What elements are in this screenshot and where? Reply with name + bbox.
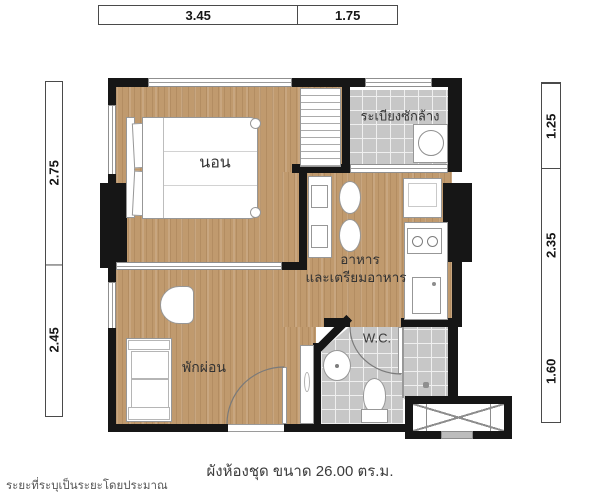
placemat-1 <box>311 185 328 208</box>
entry-console <box>300 345 314 424</box>
balcony-label: ระเบียงซักล้าง <box>361 106 440 127</box>
dimension-left-1: 2.75 <box>46 82 62 265</box>
dimension-right-1: 1.25 <box>542 83 560 168</box>
basin-drain <box>335 364 339 368</box>
entry-door-leaf <box>282 367 287 424</box>
armchair <box>160 286 194 324</box>
bedroom-window <box>148 78 292 87</box>
bed-post-bottom <box>250 207 261 218</box>
wall-top-mid <box>292 78 365 87</box>
ac-ledge-cap-left <box>426 404 427 431</box>
sofa-arm-bottom <box>128 407 170 420</box>
sofa-cushion-1 <box>131 351 169 379</box>
bedroom-side-window <box>108 105 116 177</box>
console-handle <box>304 372 310 392</box>
balcony-sliding-door <box>350 164 448 173</box>
bed-blanket-fold <box>163 118 164 218</box>
wall-left-d <box>108 328 116 432</box>
refrigerator-lid <box>408 183 437 207</box>
shower-drain <box>423 382 429 388</box>
dimension-top-2: 1.75 <box>298 6 397 24</box>
sofa-cushion-2 <box>131 379 169 408</box>
toilet-tank <box>361 409 388 423</box>
washing-machine <box>413 124 448 163</box>
wall-right-mid <box>452 260 462 327</box>
dining-chair-1 <box>339 181 361 214</box>
ac-ledge-cap-right <box>490 404 491 431</box>
plan-footnote: ระยะที่ระบุเป็นระยะโดยประมาณ <box>6 477 168 495</box>
wall-shower-right <box>448 327 458 398</box>
dimension-bar-top: 3.45 1.75 <box>98 5 398 25</box>
living-side-window <box>108 282 116 330</box>
wall-left-a <box>108 78 116 108</box>
dimension-right-3: 1.60 <box>542 321 560 422</box>
bed-post-top <box>250 118 261 129</box>
washing-machine-drum <box>418 130 444 156</box>
balcony-rail <box>365 78 432 87</box>
toilet-bowl <box>363 378 386 413</box>
placemat-2 <box>311 225 328 248</box>
wc-label: W.C. <box>363 331 391 346</box>
burner-1 <box>412 236 423 247</box>
entry-door-opening <box>228 424 284 432</box>
kitchen-faucet <box>432 282 436 286</box>
burner-2 <box>427 236 438 247</box>
sofa-arm-top <box>128 340 170 350</box>
wc-door-leaf <box>398 327 403 374</box>
dimension-bar-left: 2.75 2.45 <box>45 81 63 417</box>
wall-partition-stub <box>282 262 307 270</box>
shower-floor <box>403 327 452 400</box>
refrigerator <box>403 178 442 218</box>
kitchen-sink <box>412 277 441 314</box>
column-left <box>100 183 127 268</box>
bed-seam-2 <box>164 185 257 186</box>
wall-bottom-right <box>284 424 411 432</box>
wall-bottom-left <box>108 424 228 432</box>
dimension-top-1: 3.45 <box>99 6 298 24</box>
wall-right-top <box>448 78 462 172</box>
bedroom-sliding-partition <box>116 262 282 270</box>
floor-plan-canvas: 3.45 1.75 2.75 2.45 1.25 2.35 1.60 <box>0 0 600 503</box>
wall-balcony-left <box>342 87 350 172</box>
wall-kitchen-left <box>299 173 307 270</box>
sofa <box>126 338 172 422</box>
dimension-left-2: 2.45 <box>46 265 62 416</box>
wash-basin <box>323 350 351 381</box>
living-label: พักผ่อน <box>182 357 226 379</box>
plan-caption: ผังห้องชุด ขนาด 26.00 ตร.ม. <box>207 459 394 483</box>
kitchen-label-line2: และเตรียมอาหาร <box>305 266 406 288</box>
bedroom-label: นอน <box>199 151 230 176</box>
dimension-right-2: 2.35 <box>542 168 560 321</box>
dimension-bar-right: 1.25 2.35 1.60 <box>541 82 561 423</box>
wardrobe <box>300 88 341 167</box>
ac-ledge-tab <box>441 431 473 439</box>
stove <box>407 228 442 254</box>
wall-wc-left <box>313 343 321 424</box>
